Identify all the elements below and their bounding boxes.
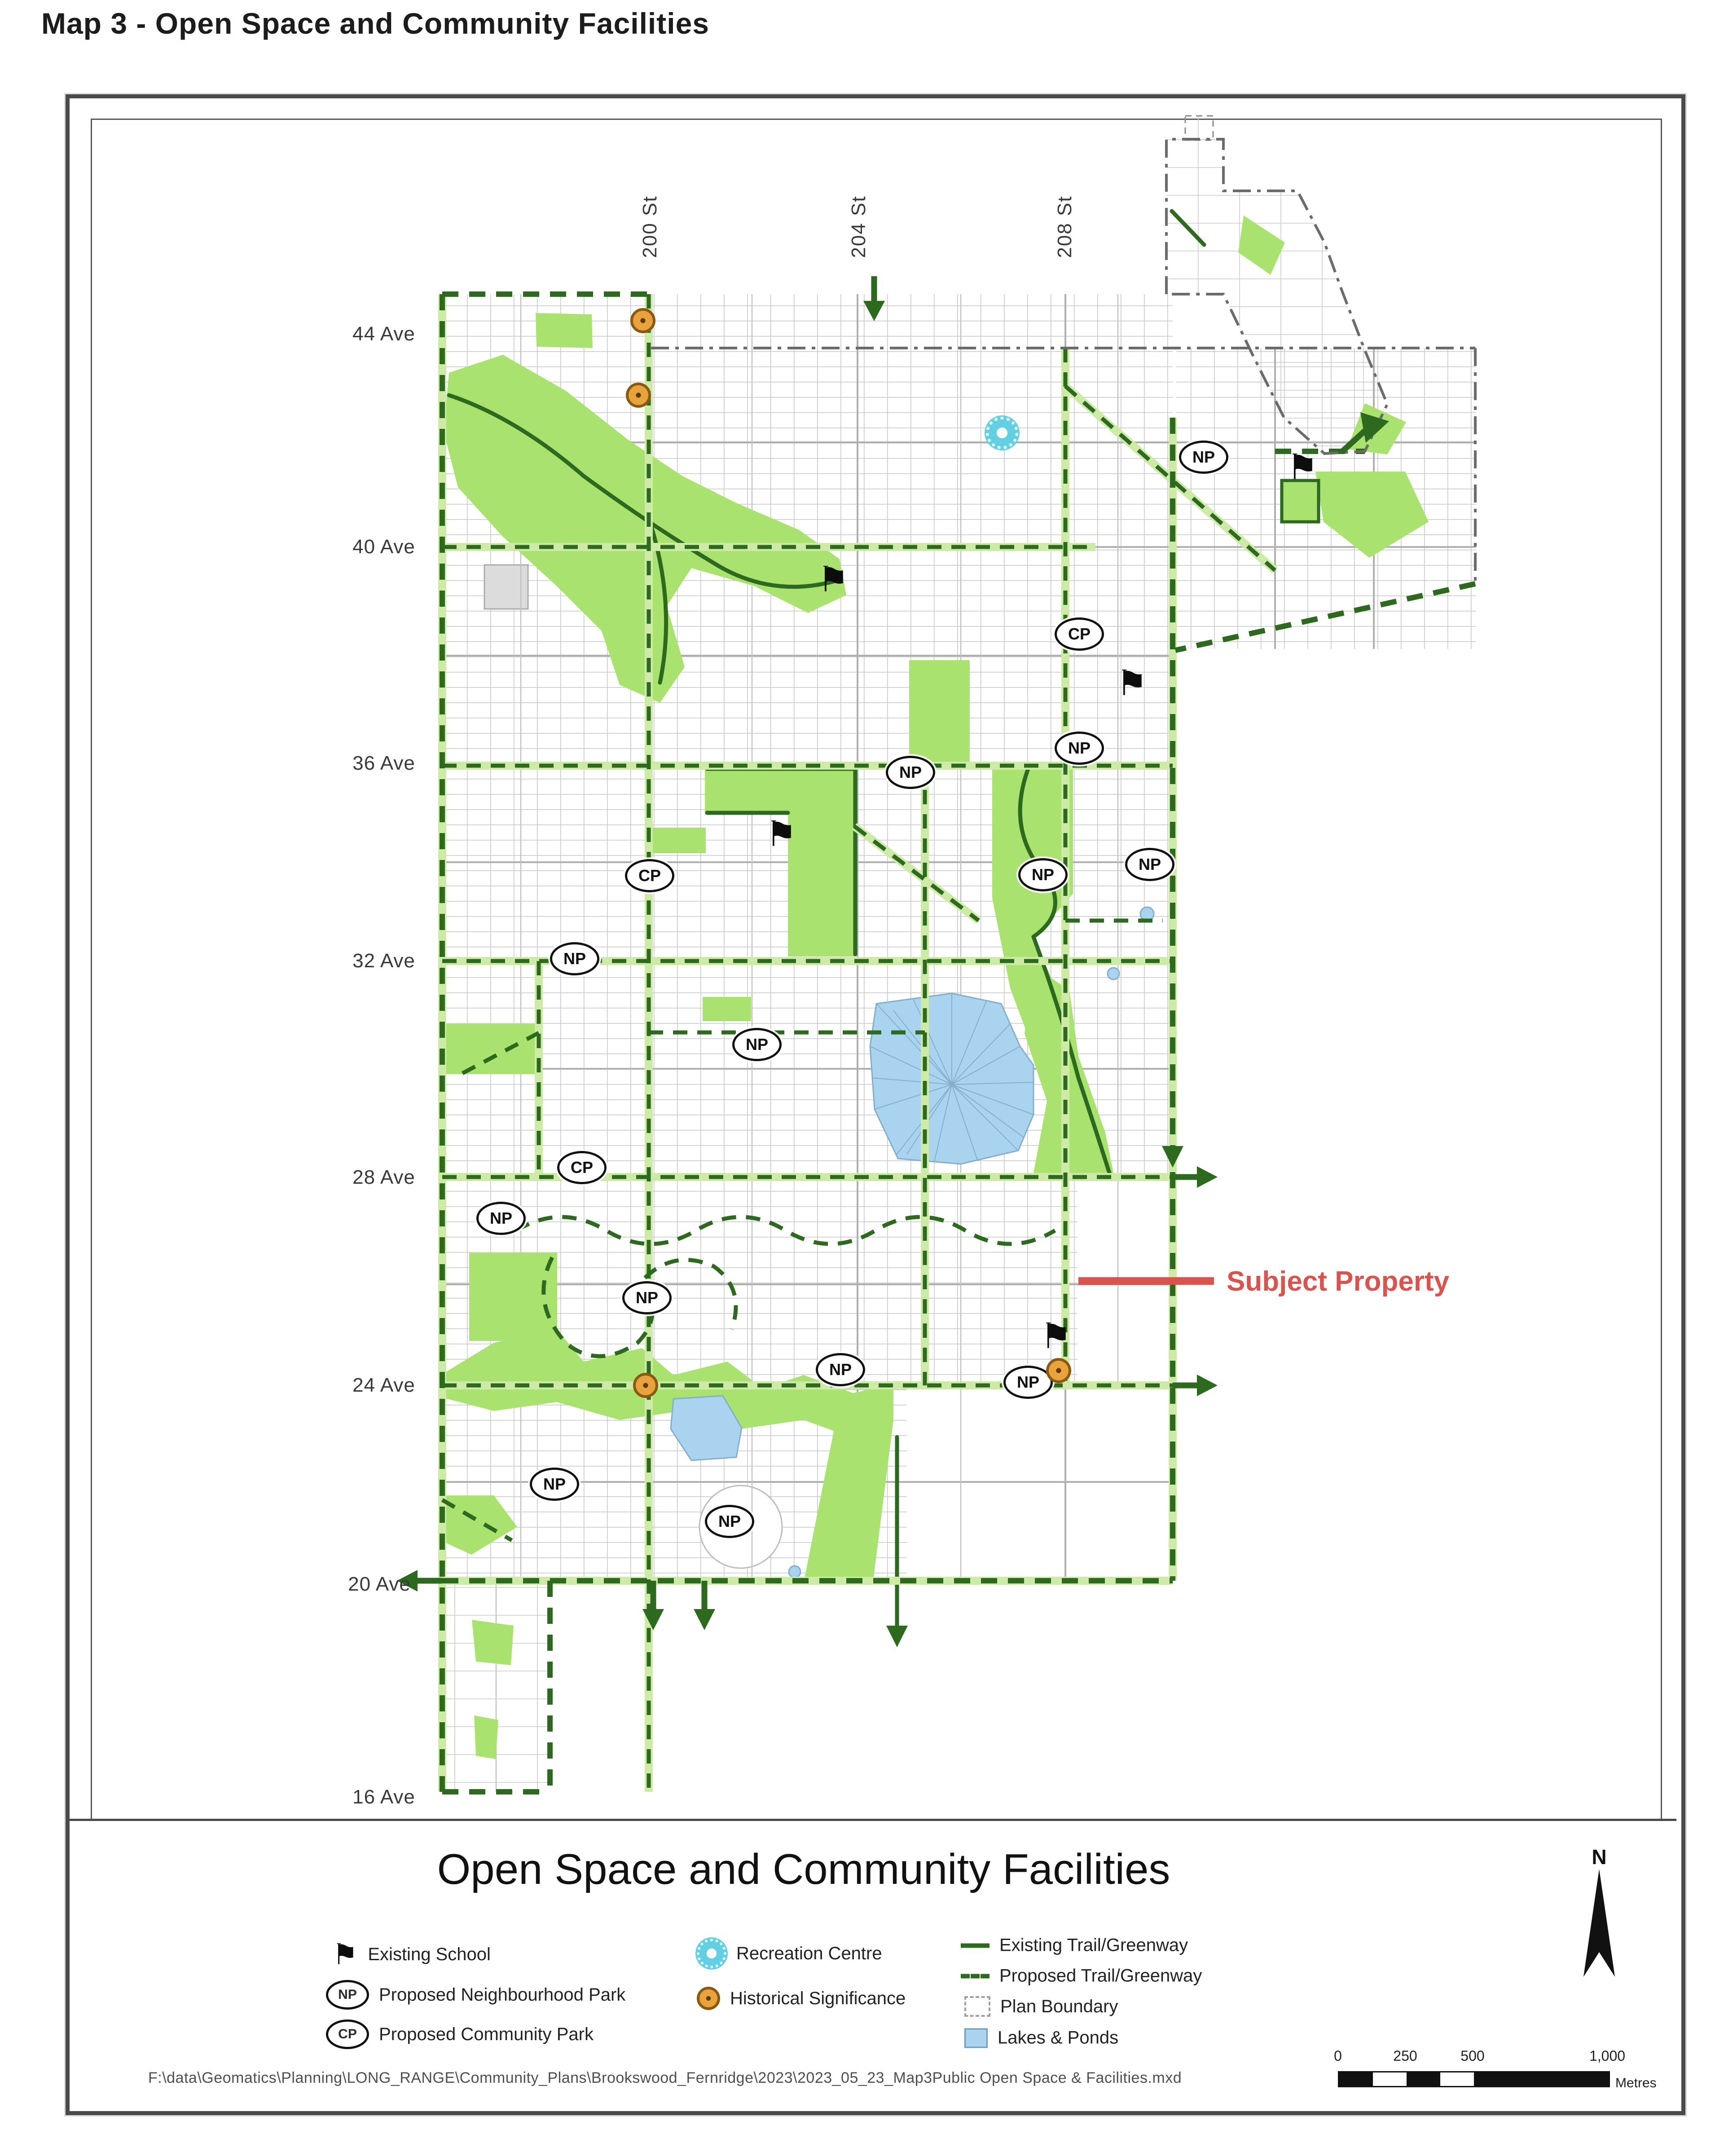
existing-trail-line-icon <box>961 1943 990 1948</box>
cp-oval-icon: CP <box>326 2019 369 2049</box>
legend-label: Lakes & Ponds <box>998 2028 1118 2048</box>
historical-significance-icon <box>697 1987 720 2010</box>
np-marker: NP <box>1125 848 1174 881</box>
legend-item-recreation-centre: Recreation Centre <box>697 1939 882 1968</box>
np-marker: NP <box>705 1505 754 1538</box>
np-marker: NP <box>886 756 935 789</box>
np-marker: NP <box>530 1468 579 1501</box>
school-flag-icon: ⚑ <box>1287 450 1318 485</box>
school-flag-icon: ⚑ <box>818 562 849 597</box>
cp-marker: CP <box>625 859 674 892</box>
legend-item-lakes-ponds: Lakes & Ponds <box>964 2028 1118 2048</box>
north-label: N <box>1577 1845 1622 1869</box>
map-panel <box>91 119 1662 1821</box>
avenue-label: 36 Ave <box>352 752 415 775</box>
legend-label: Proposed Trail/Greenway <box>999 1966 1202 1986</box>
np-marker: NP <box>1003 1366 1053 1399</box>
school-flag-icon: ⚑ <box>765 816 797 851</box>
np-oval-icon: NP <box>326 1980 369 2010</box>
school-flag-icon: ⚑ <box>1040 1318 1072 1354</box>
np-marker: NP <box>550 942 599 975</box>
legend-label: Existing Trail/Greenway <box>999 1936 1188 1956</box>
scale-bar-segments <box>1338 2071 1610 2087</box>
legend-label: Existing School <box>368 1944 490 1965</box>
np-marker: NP <box>816 1353 865 1386</box>
avenue-label: 32 Ave <box>352 950 415 972</box>
recreation-centre-icon <box>697 1939 726 1968</box>
legend-item-existing-trail: Existing Trail/Greenway <box>961 1936 1188 1956</box>
np-marker: NP <box>622 1281 672 1314</box>
np-marker: NP <box>1018 858 1068 891</box>
avenue-label: 20 Ave <box>348 1573 411 1596</box>
subject-property-label: Subject Property <box>1227 1265 1449 1297</box>
scale-tick: 500 <box>1460 2048 1484 2064</box>
legend-label: Proposed Community Park <box>379 2024 594 2045</box>
historical-significance-icon <box>626 383 651 408</box>
legend-divider <box>67 1819 1676 1821</box>
legend-item-plan-boundary: Plan Boundary <box>964 1996 1118 2017</box>
legend-item-historical-significance: Historical Significance <box>697 1987 906 2010</box>
np-marker: NP <box>1055 732 1104 765</box>
legend-label: Plan Boundary <box>1000 1997 1118 2017</box>
legend-label: Proposed Neighbourhood Park <box>379 1985 625 2005</box>
lakes-ponds-icon <box>964 2028 988 2048</box>
subject-property-leader-line <box>1078 1277 1214 1285</box>
legend-label: Historical Significance <box>730 1988 906 2009</box>
scale-tick: 250 <box>1393 2048 1417 2064</box>
legend-item-proposed-trail: Proposed Trail/Greenway <box>961 1966 1202 1986</box>
proposed-trail-line-icon <box>961 1974 990 1978</box>
np-marker: NP <box>1179 441 1228 474</box>
document-path: F:\data\Geomatics\Planning\LONG_RANGE\Co… <box>148 2069 1182 2087</box>
cp-marker: CP <box>557 1151 607 1184</box>
np-marker: NP <box>476 1202 526 1235</box>
scale-unit-label: Metres <box>1615 2076 1657 2091</box>
legend-item-proposed-community-park: CP Proposed Community Park <box>326 2019 594 2049</box>
historical-significance-icon <box>630 308 655 333</box>
legend-label: Recreation Centre <box>736 1944 882 1964</box>
legend-item-existing-school: ⚑ Existing School <box>332 1940 491 1969</box>
legend-item-proposed-neighbourhood-park: NP Proposed Neighbourhood Park <box>326 1980 625 2010</box>
street-label: 200 St <box>639 195 661 258</box>
recreation-centre-icon <box>986 417 1018 449</box>
street-label: 208 St <box>1054 195 1076 258</box>
plan-boundary-icon <box>964 1996 990 2017</box>
school-flag-icon: ⚑ <box>332 1940 358 1969</box>
avenue-label: 40 Ave <box>352 536 415 558</box>
north-arrow: N <box>1577 1845 1622 1984</box>
avenue-label: 28 Ave <box>352 1166 415 1189</box>
cp-marker: CP <box>1055 617 1104 651</box>
north-arrow-icon <box>1577 1869 1622 1981</box>
historical-significance-icon <box>1046 1358 1071 1383</box>
school-flag-icon: ⚑ <box>1116 666 1148 701</box>
avenue-label: 24 Ave <box>352 1374 415 1397</box>
avenue-label: 44 Ave <box>352 323 415 345</box>
scale-tick: 1,000 <box>1589 2048 1625 2064</box>
street-label: 204 St <box>848 195 870 258</box>
scale-tick: 0 <box>1334 2048 1342 2064</box>
page-title: Map 3 - Open Space and Community Facilit… <box>41 6 709 40</box>
historical-significance-icon <box>633 1373 658 1398</box>
np-marker: NP <box>732 1028 782 1061</box>
avenue-label: 16 Ave <box>352 1786 415 1808</box>
legend-title: Open Space and Community Facilities <box>359 1845 1248 1894</box>
